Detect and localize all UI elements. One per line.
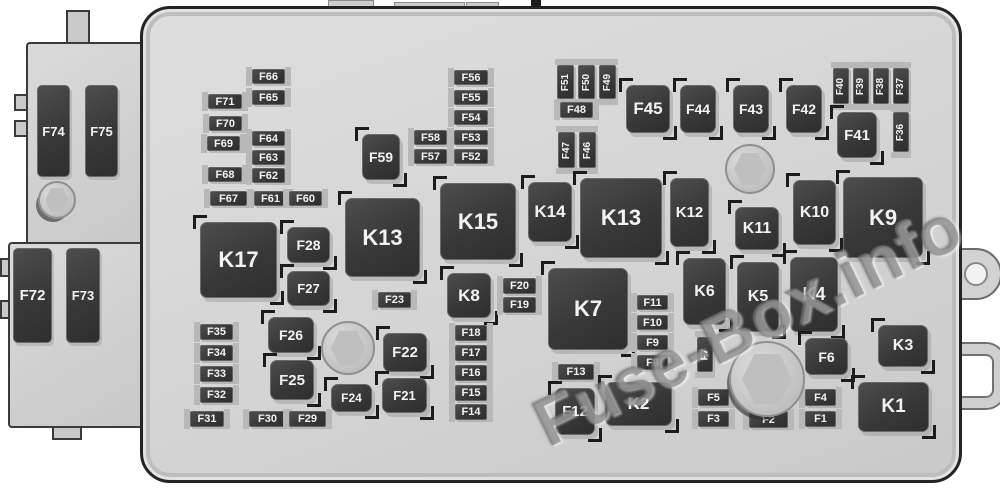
label-f23: F23 xyxy=(385,294,404,306)
relay-k15: K15 xyxy=(440,183,516,260)
label-f56: F56 xyxy=(462,72,481,84)
label-f57: F57 xyxy=(421,151,440,163)
bolt-upper-right xyxy=(725,144,775,194)
bolt-left-module xyxy=(38,181,76,219)
label-f74: F74 xyxy=(42,124,64,139)
label-f33: F33 xyxy=(207,368,226,380)
label-f53: F53 xyxy=(462,132,481,144)
bolt-lower-center xyxy=(321,321,375,375)
label-k2: K2 xyxy=(628,394,650,414)
label-f63: F63 xyxy=(259,152,278,164)
relay-k7: K7 xyxy=(548,268,628,350)
label-k7: K7 xyxy=(574,296,602,322)
relay-f41: F41 xyxy=(837,112,877,158)
label-k3: K3 xyxy=(893,337,913,355)
fuse-f3: F3 xyxy=(698,411,729,427)
label-f9: F9 xyxy=(646,337,659,349)
label-f5: F5 xyxy=(707,392,720,404)
relay-k11: K11 xyxy=(735,207,779,250)
fuse-f56: F56 xyxy=(454,70,488,85)
label-k10: K10 xyxy=(800,204,829,222)
label-f4: F4 xyxy=(814,392,827,404)
fuse-f11: F11 xyxy=(637,295,668,310)
label-k14: K14 xyxy=(534,202,565,222)
relay-f22: F22 xyxy=(383,333,427,372)
label-f54: F54 xyxy=(462,112,481,124)
label-f46: F46 xyxy=(582,141,593,158)
relay-k4: K4 xyxy=(790,257,838,332)
label-f18: F18 xyxy=(462,327,481,339)
fuse-f63: F63 xyxy=(252,150,285,165)
label-f29: F29 xyxy=(298,413,317,425)
relay-f28: F28 xyxy=(287,227,330,263)
label-k9: K9 xyxy=(869,205,897,231)
fuse-f32: F32 xyxy=(200,387,233,403)
relay-k3: K3 xyxy=(878,325,928,367)
fuse-f9: F9 xyxy=(637,335,668,350)
fuse-f37: F37 xyxy=(893,68,909,104)
relay-f59: F59 xyxy=(362,134,400,180)
fuse-f49: F49 xyxy=(599,65,616,99)
fuse-f71: F71 xyxy=(208,94,242,109)
label-f1: F1 xyxy=(814,413,827,425)
component-board: F74F75F72F73F66F65F71F70F69F64F63F68F62F… xyxy=(0,0,1000,489)
label-f19: F19 xyxy=(510,299,529,311)
fuse-f23: F23 xyxy=(378,292,411,308)
label-f39: F39 xyxy=(856,77,867,94)
fuse-f29: F29 xyxy=(289,411,326,427)
fuse-f57: F57 xyxy=(414,149,447,164)
fuse-f55: F55 xyxy=(454,90,488,105)
label-f42: F42 xyxy=(792,101,816,117)
fuse-box-diagram: F74F75F72F73F66F65F71F70F69F64F63F68F62F… xyxy=(0,0,1000,489)
label-f3: F3 xyxy=(707,413,720,425)
label-f17: F17 xyxy=(462,347,481,359)
relay-k8: K8 xyxy=(447,273,491,318)
fuse-f46: F46 xyxy=(579,132,596,168)
label-f47: F47 xyxy=(561,141,572,158)
fuse-f64: F64 xyxy=(252,131,285,146)
relay-k14: K14 xyxy=(528,182,572,242)
fuse-f38: F38 xyxy=(873,68,889,104)
relay-k17: K17 xyxy=(200,222,277,298)
fuse-f1: F1 xyxy=(805,411,836,427)
label-f52: F52 xyxy=(462,151,481,163)
label-f68: F68 xyxy=(216,169,235,181)
fuse-f39: F39 xyxy=(853,68,869,104)
label-f12: F12 xyxy=(562,403,588,420)
fuse-f36: F36 xyxy=(893,112,909,152)
relay-f43: F43 xyxy=(733,85,769,133)
label-f37: F37 xyxy=(896,77,907,94)
label-f45: F45 xyxy=(633,99,662,119)
label-k1: K1 xyxy=(881,396,905,418)
fuse-f47: F47 xyxy=(558,132,575,168)
relay-k12: K12 xyxy=(670,178,709,247)
label-f38: F38 xyxy=(876,77,887,94)
relay-f74: F74 xyxy=(37,85,70,177)
label-f49: F49 xyxy=(602,73,613,90)
fuse-f35: F35 xyxy=(200,324,233,340)
fuse-f40: F40 xyxy=(833,68,849,104)
label-f69: F69 xyxy=(214,138,233,150)
label-f35: F35 xyxy=(207,326,226,338)
fuse-f50: F50 xyxy=(578,65,595,99)
label-f6: F6 xyxy=(818,349,834,365)
fuse-f31: F31 xyxy=(190,411,224,427)
relay-k13a: K13 xyxy=(345,198,420,277)
relay-f44: F44 xyxy=(680,85,716,133)
relay-f24: F24 xyxy=(331,384,372,412)
fuse-f51: F51 xyxy=(557,65,574,99)
label-f71: F71 xyxy=(216,96,235,108)
relay-k1: K1 xyxy=(858,382,929,432)
label-f36: F36 xyxy=(896,123,907,140)
label-f70: F70 xyxy=(216,118,235,130)
label-f67: F67 xyxy=(219,193,238,205)
hex-nut-icon xyxy=(331,330,366,367)
label-f22: F22 xyxy=(392,344,418,361)
label-f40: F40 xyxy=(836,77,847,94)
label-k13a: K13 xyxy=(362,225,402,251)
label-f7: F7 xyxy=(699,349,710,361)
hex-nut-icon xyxy=(45,187,69,212)
label-f48: F48 xyxy=(567,104,586,116)
fuse-f66: F66 xyxy=(252,69,285,84)
label-f10: F10 xyxy=(643,317,662,329)
relay-f75: F75 xyxy=(85,85,118,177)
label-f30: F30 xyxy=(258,413,277,425)
fuse-f10: F10 xyxy=(637,315,668,330)
label-f27: F27 xyxy=(297,281,319,296)
label-f20: F20 xyxy=(510,280,529,292)
relay-f42: F42 xyxy=(786,85,822,133)
fuse-f70: F70 xyxy=(209,116,242,131)
label-f34: F34 xyxy=(207,347,226,359)
label-k8: K8 xyxy=(458,286,480,306)
label-f31: F31 xyxy=(198,413,217,425)
label-f41: F41 xyxy=(844,127,870,144)
fuse-f33: F33 xyxy=(200,366,233,382)
fuse-f67: F67 xyxy=(210,191,247,206)
label-f13: F13 xyxy=(567,366,586,378)
label-k11: K11 xyxy=(743,220,771,238)
fuse-f34: F34 xyxy=(200,345,233,361)
label-k6: K6 xyxy=(694,283,714,301)
label-k15: K15 xyxy=(458,209,498,235)
label-f14: F14 xyxy=(462,406,481,418)
fuse-f65: F65 xyxy=(252,90,285,105)
label-f24: F24 xyxy=(341,391,362,405)
fuse-f52: F52 xyxy=(454,149,488,164)
relay-f21: F21 xyxy=(382,378,427,413)
fuse-f20: F20 xyxy=(503,278,536,294)
relay-k10: K10 xyxy=(793,180,836,245)
label-k17: K17 xyxy=(218,247,258,273)
label-k12: K12 xyxy=(676,204,704,221)
relay-f72: F72 xyxy=(13,248,52,343)
relay-k2: K2 xyxy=(605,382,672,426)
fuse-f48: F48 xyxy=(560,102,593,118)
fuse-f19: F19 xyxy=(503,297,536,313)
label-f26: F26 xyxy=(279,327,303,343)
fuse-f13: F13 xyxy=(558,364,594,380)
relay-k6: K6 xyxy=(683,258,726,325)
label-f66: F66 xyxy=(259,71,278,83)
relay-k9: K9 xyxy=(843,177,923,258)
label-f75: F75 xyxy=(90,124,112,139)
fuse-f62: F62 xyxy=(252,168,285,183)
label-f28: F28 xyxy=(296,237,320,253)
label-f65: F65 xyxy=(259,92,278,104)
fuse-f8: F8 xyxy=(637,355,668,370)
fuse-f4: F4 xyxy=(805,389,836,406)
hex-nut-icon xyxy=(742,352,792,405)
relay-f6: F6 xyxy=(805,338,848,375)
relay-f45: F45 xyxy=(626,85,670,133)
label-f44: F44 xyxy=(686,101,710,117)
relay-f26: F26 xyxy=(268,317,314,353)
fuse-f69: F69 xyxy=(207,136,240,151)
label-f11: F11 xyxy=(643,297,661,309)
fuse-f54: F54 xyxy=(454,110,488,125)
label-f8: F8 xyxy=(646,357,659,369)
label-f72: F72 xyxy=(20,287,46,304)
hex-nut-icon xyxy=(734,152,766,186)
label-k5: K5 xyxy=(748,288,768,306)
label-f64: F64 xyxy=(259,133,278,145)
relay-k5: K5 xyxy=(737,262,779,332)
fuse-f30: F30 xyxy=(249,411,286,427)
label-f25: F25 xyxy=(279,372,305,389)
fuse-f17: F17 xyxy=(455,345,487,361)
label-f16: F16 xyxy=(462,367,481,379)
label-f21: F21 xyxy=(393,388,415,403)
fuse-f5: F5 xyxy=(698,389,729,406)
label-f60: F60 xyxy=(296,193,315,205)
relay-k13b: K13 xyxy=(580,178,662,258)
label-k13b: K13 xyxy=(601,205,641,231)
fuse-f14: F14 xyxy=(455,404,487,420)
fuse-f58: F58 xyxy=(414,130,447,145)
fuse-f7: F7 xyxy=(697,337,713,372)
label-f43: F43 xyxy=(739,101,763,117)
bolt-lower-right xyxy=(729,341,805,417)
fuse-f53: F53 xyxy=(454,130,488,145)
relay-f73: F73 xyxy=(66,248,100,343)
fuse-f16: F16 xyxy=(455,365,487,381)
label-f51: F51 xyxy=(560,73,571,90)
label-f32: F32 xyxy=(207,389,226,401)
fuse-f18: F18 xyxy=(455,325,487,341)
label-f50: F50 xyxy=(581,73,592,90)
label-f61: F61 xyxy=(261,193,280,205)
label-f59: F59 xyxy=(369,149,393,165)
label-f62: F62 xyxy=(259,170,278,182)
fuse-f68: F68 xyxy=(208,167,242,182)
label-f58: F58 xyxy=(421,132,440,144)
label-f73: F73 xyxy=(72,288,94,303)
label-f15: F15 xyxy=(462,387,481,399)
relay-f12: F12 xyxy=(555,388,595,435)
label-k4: K4 xyxy=(802,284,825,305)
relay-f27: F27 xyxy=(287,271,330,306)
fuse-f15: F15 xyxy=(455,385,487,401)
label-f55: F55 xyxy=(462,92,481,104)
relay-f25: F25 xyxy=(270,360,314,400)
fuse-f60: F60 xyxy=(289,191,322,206)
